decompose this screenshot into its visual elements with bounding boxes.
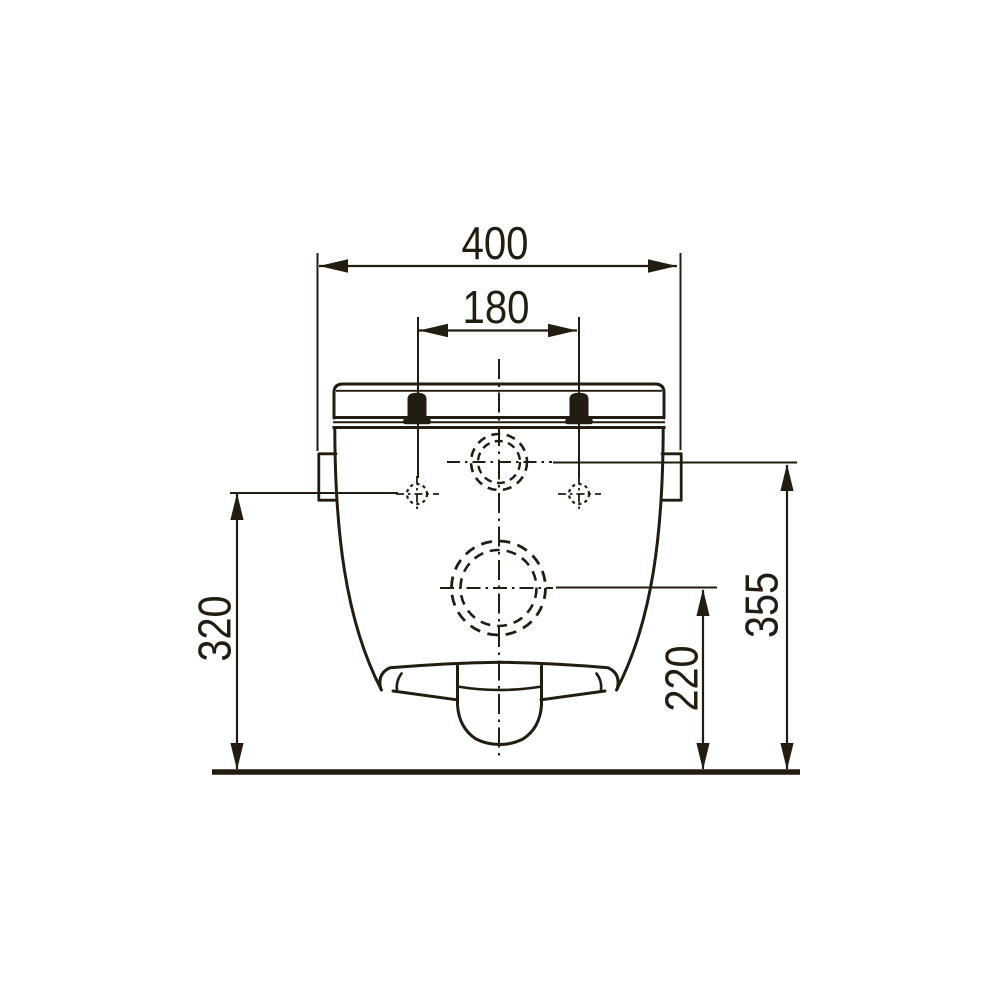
bowl-rim-underside-right (541, 691, 605, 700)
dim-400-arrow-right (648, 259, 677, 273)
dim-320-label: 320 (189, 596, 241, 662)
bowl-side-left (335, 428, 382, 690)
dim-220-arrow-top (696, 589, 709, 616)
seat-hinge-bolt-right (565, 393, 593, 424)
dim-right-height-group: 355 (553, 463, 797, 771)
dim-outlet-height-group: 220 (556, 588, 717, 771)
dim-180-arrow-left (419, 324, 448, 338)
dim-320-arrow-bottom (230, 743, 243, 770)
dim-355-arrow-bottom (780, 743, 793, 770)
dim-320-arrow-top (230, 493, 243, 520)
bowl-rim-underside-left (393, 691, 457, 700)
mounting-ear-right (662, 454, 681, 500)
dim-220-label: 220 (656, 646, 708, 712)
seat-hinge-bolt-left (403, 393, 431, 424)
dim-400-arrow-left (319, 259, 348, 273)
technical-drawing-page: 400 180 (0, 0, 1000, 1000)
dim-220-arrow-bottom (696, 743, 709, 770)
dim-left-height-group: 320 (189, 493, 399, 770)
dim-355-arrow-top (780, 464, 793, 491)
bowl-rim-cap-left (397, 674, 402, 691)
wall-hung-wc-front-dimension-drawing: 400 180 (0, 0, 1000, 1000)
dim-180-label: 180 (463, 281, 530, 333)
dim-overall-width-group: 400 (318, 217, 681, 451)
bowl-rim-cap-right (597, 674, 602, 691)
dim-bolt-spacing-group: 180 (418, 281, 579, 478)
dim-180-arrow-right (548, 324, 577, 338)
dim-400-label: 400 (462, 217, 529, 269)
dim-355-label: 355 (736, 572, 788, 638)
